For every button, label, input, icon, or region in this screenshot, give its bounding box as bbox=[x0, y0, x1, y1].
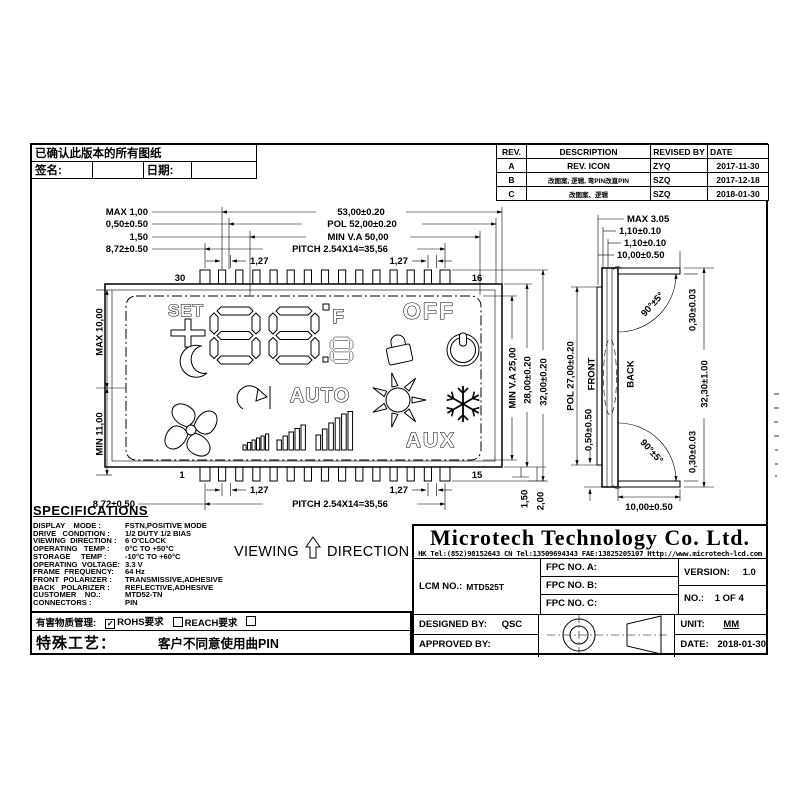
dim-label: 53,00±0.20 bbox=[337, 207, 384, 218]
pin-row-bottom bbox=[200, 467, 450, 481]
dim-label: 1,27 bbox=[250, 485, 269, 496]
dim-label: 1,50 bbox=[520, 490, 531, 509]
approved-by-label: APPROVED BY: bbox=[414, 635, 538, 654]
edge-marks bbox=[774, 394, 779, 476]
lcm-no-label: LCM NO.: bbox=[419, 581, 462, 592]
confirmation-title: 已确认此版本的所有图纸 bbox=[32, 145, 257, 162]
front-view-dimensions-right: MIN V.A 25,00 28,00±0.20 32,00±0.20 bbox=[452, 270, 550, 481]
set-label: SET bbox=[168, 301, 204, 320]
dim-label: POL 27,00±0.20 bbox=[566, 341, 577, 410]
dim-label: MIN 11,00 bbox=[95, 412, 106, 455]
viewing-direction-word: DIRECTION bbox=[327, 544, 409, 560]
front-label: FRONT bbox=[587, 357, 598, 390]
moon-icon bbox=[180, 345, 207, 377]
viewing-direction-word: VIEWING bbox=[234, 544, 299, 560]
fpc-no-a: FPC NO. A: bbox=[541, 559, 678, 577]
dim-label: 1,10±0.10 bbox=[624, 238, 666, 249]
dim-label: POL 52,00±0.20 bbox=[327, 219, 396, 230]
revision-row: A REV. ICON ZYQ 2017-11-30 bbox=[497, 159, 769, 173]
dim-label: 0,50±0.50 bbox=[584, 409, 595, 451]
revision-table: REV. DESCRIPTION REVISED BY DATE A REV. … bbox=[496, 144, 769, 201]
technical-drawing: 30 16 1 15 SET F bbox=[0, 0, 800, 800]
dim-label: PITCH 2.54X14=35,56 bbox=[292, 244, 388, 255]
dim-label: MAX 10,00 bbox=[95, 308, 106, 356]
seven-seg-digit-small bbox=[330, 337, 353, 363]
bar-graph-medium bbox=[277, 425, 305, 450]
snowflake-icon bbox=[445, 386, 481, 422]
plus-icon bbox=[171, 319, 205, 347]
side-view-dimensions-bottom: 10,00±0.50 bbox=[618, 489, 680, 513]
pin-number: 15 bbox=[472, 470, 483, 481]
checkbox-unchecked[interactable] bbox=[246, 616, 256, 626]
company-name: Microtech Technology Co. Ltd. bbox=[414, 526, 766, 549]
hazard-label: 有害物质管理: bbox=[36, 615, 96, 629]
hazard-special-box: 有害物质管理: ✓ROHS要求 REACH要求 特殊工艺： 客户不同意使用曲PI… bbox=[30, 611, 412, 655]
special-process-label: 特殊工艺： bbox=[36, 632, 116, 653]
dim-label: 0,30±0.03 bbox=[688, 431, 699, 473]
sheet-no-label: NO.: bbox=[684, 593, 704, 604]
company-contact: HK Tel:(852)98152643 CN Tel:13509694343 … bbox=[414, 549, 766, 559]
dim-label: 32,30±1.00 bbox=[700, 360, 711, 407]
drawing-sheet: 30 16 1 15 SET F bbox=[0, 0, 800, 800]
unit-label: UNIT: bbox=[680, 619, 704, 630]
date-label: DATE: bbox=[680, 639, 708, 650]
viewing-direction: VIEWING DIRECTION bbox=[234, 536, 409, 560]
dim-label: 2,00 bbox=[536, 492, 547, 511]
top-pin-flange bbox=[618, 268, 680, 274]
dim-label: 8,72±0.50 bbox=[106, 244, 148, 255]
title-block: Microtech Technology Co. Ltd. HK Tel:(85… bbox=[412, 524, 768, 655]
bar-graph-large bbox=[316, 412, 353, 451]
hazard-item-reach: REACH要求 bbox=[173, 615, 238, 629]
dim-label: 1,27 bbox=[390, 256, 409, 267]
dim-label: 28,00±0.20 bbox=[523, 356, 534, 403]
date-label: 日期: bbox=[143, 162, 192, 179]
dim-label: MAX 3.05 bbox=[627, 214, 670, 225]
lock-icon bbox=[384, 333, 413, 365]
pin-row-top bbox=[200, 270, 450, 284]
checkbox-checked[interactable]: ✓ bbox=[105, 619, 115, 629]
fpc-no-b: FPC NO. B: bbox=[541, 577, 678, 595]
description-header: DESCRIPTION bbox=[527, 145, 651, 159]
hazard-item-halogen bbox=[246, 616, 258, 628]
unit-value: MM bbox=[723, 619, 739, 630]
hazard-item-rohs: ✓ROHS要求 bbox=[105, 614, 163, 629]
decimal-point bbox=[323, 357, 328, 362]
dim-label: MIN V.A 50,00 bbox=[327, 232, 388, 243]
off-label: OFF bbox=[403, 298, 455, 324]
dim-label: 10,00±0.50 bbox=[625, 502, 672, 513]
back-label: BACK bbox=[626, 360, 637, 388]
projection-symbol bbox=[539, 615, 674, 655]
designed-by-value: QSC bbox=[502, 619, 523, 630]
fan-icon bbox=[165, 404, 217, 456]
revised-by-header: REVISED BY bbox=[651, 145, 708, 159]
seven-seg-digit bbox=[210, 307, 260, 364]
lcm-no-value: MTD525T bbox=[466, 582, 504, 592]
pin-number: 30 bbox=[175, 273, 186, 284]
designed-by-label: DESIGNED BY: bbox=[419, 619, 487, 630]
fpc-no-c: FPC NO. C: bbox=[541, 595, 678, 612]
power-icon bbox=[447, 333, 479, 366]
pin-number: 16 bbox=[472, 273, 483, 284]
sign-label: 签名: bbox=[32, 162, 93, 179]
revision-row: C 改图案、逻辑 SZQ 2018-01-30 bbox=[497, 187, 769, 201]
side-view-dimensions-right: 32,30±1.00 0,30±0.03 0,30±0.03 bbox=[684, 268, 714, 487]
spec-row: CONNECTORS :PIN bbox=[33, 599, 408, 607]
revision-row: B 改图案, 逻辑, 弯PIN改直PIN SZQ 2017-12-18 bbox=[497, 173, 769, 187]
special-process-value: 客户不同意使用曲PIN bbox=[158, 633, 279, 652]
sheet-no-value: 1 OF 4 bbox=[715, 593, 744, 604]
lcd-panel: SET F OFF bbox=[165, 298, 481, 456]
confirmation-table: 已确认此版本的所有图纸 签名: 日期: bbox=[31, 144, 257, 179]
dim-label: 1,10±0.10 bbox=[619, 226, 661, 237]
dim-label: MIN V.A 25,00 bbox=[508, 347, 519, 408]
checkbox-unchecked[interactable] bbox=[173, 617, 183, 627]
hazard-row: 有害物质管理: ✓ROHS要求 REACH要求 bbox=[32, 613, 410, 631]
rev-header: REV. bbox=[497, 145, 527, 159]
fahrenheit-icon: F bbox=[332, 307, 344, 328]
refresh-icon bbox=[237, 386, 270, 409]
sun-icon bbox=[372, 372, 426, 428]
side-view: FRONT BACK 90°±5° 90°±5° bbox=[566, 214, 715, 513]
specifications-title: SPECIFICATIONS bbox=[33, 503, 408, 518]
seven-seg-digit bbox=[269, 307, 319, 364]
date-value: 2018-01-30 bbox=[717, 639, 766, 650]
dim-label: MAX 1,00 bbox=[106, 207, 148, 218]
center-mark-ellipse bbox=[604, 339, 617, 415]
dim-label: 1,27 bbox=[390, 485, 409, 496]
dim-label: 0,30±0.03 bbox=[688, 289, 699, 331]
special-process-row: 特殊工艺： 客户不同意使用曲PIN bbox=[32, 631, 410, 654]
aux-label: AUX bbox=[406, 429, 456, 452]
bottom-pin-flange bbox=[618, 481, 680, 487]
front-view: 30 16 1 15 SET F bbox=[93, 206, 550, 510]
version-value: 1.0 bbox=[743, 567, 756, 578]
dim-label: 1,50 bbox=[130, 232, 149, 243]
dim-label: 32,00±0.20 bbox=[539, 358, 550, 405]
front-view-dimensions-left: MAX 10,00 MIN 11,00 bbox=[95, 290, 127, 475]
pin-number: 1 bbox=[179, 470, 185, 481]
date-header: DATE bbox=[708, 145, 769, 159]
up-arrow-icon bbox=[305, 536, 321, 560]
dim-label: 1,27 bbox=[250, 256, 269, 267]
date-field[interactable] bbox=[192, 162, 257, 179]
sign-field[interactable] bbox=[93, 162, 144, 179]
bar-graph-small bbox=[243, 434, 269, 450]
angle-label: 90°±5° bbox=[639, 290, 666, 319]
dim-label: 0,50±0.50 bbox=[106, 219, 148, 230]
dim-label: 10,00±0.50 bbox=[617, 250, 664, 261]
version-label: VERSION: bbox=[684, 567, 730, 578]
degree-icon bbox=[323, 304, 329, 310]
auto-label: AUTO bbox=[290, 385, 350, 407]
